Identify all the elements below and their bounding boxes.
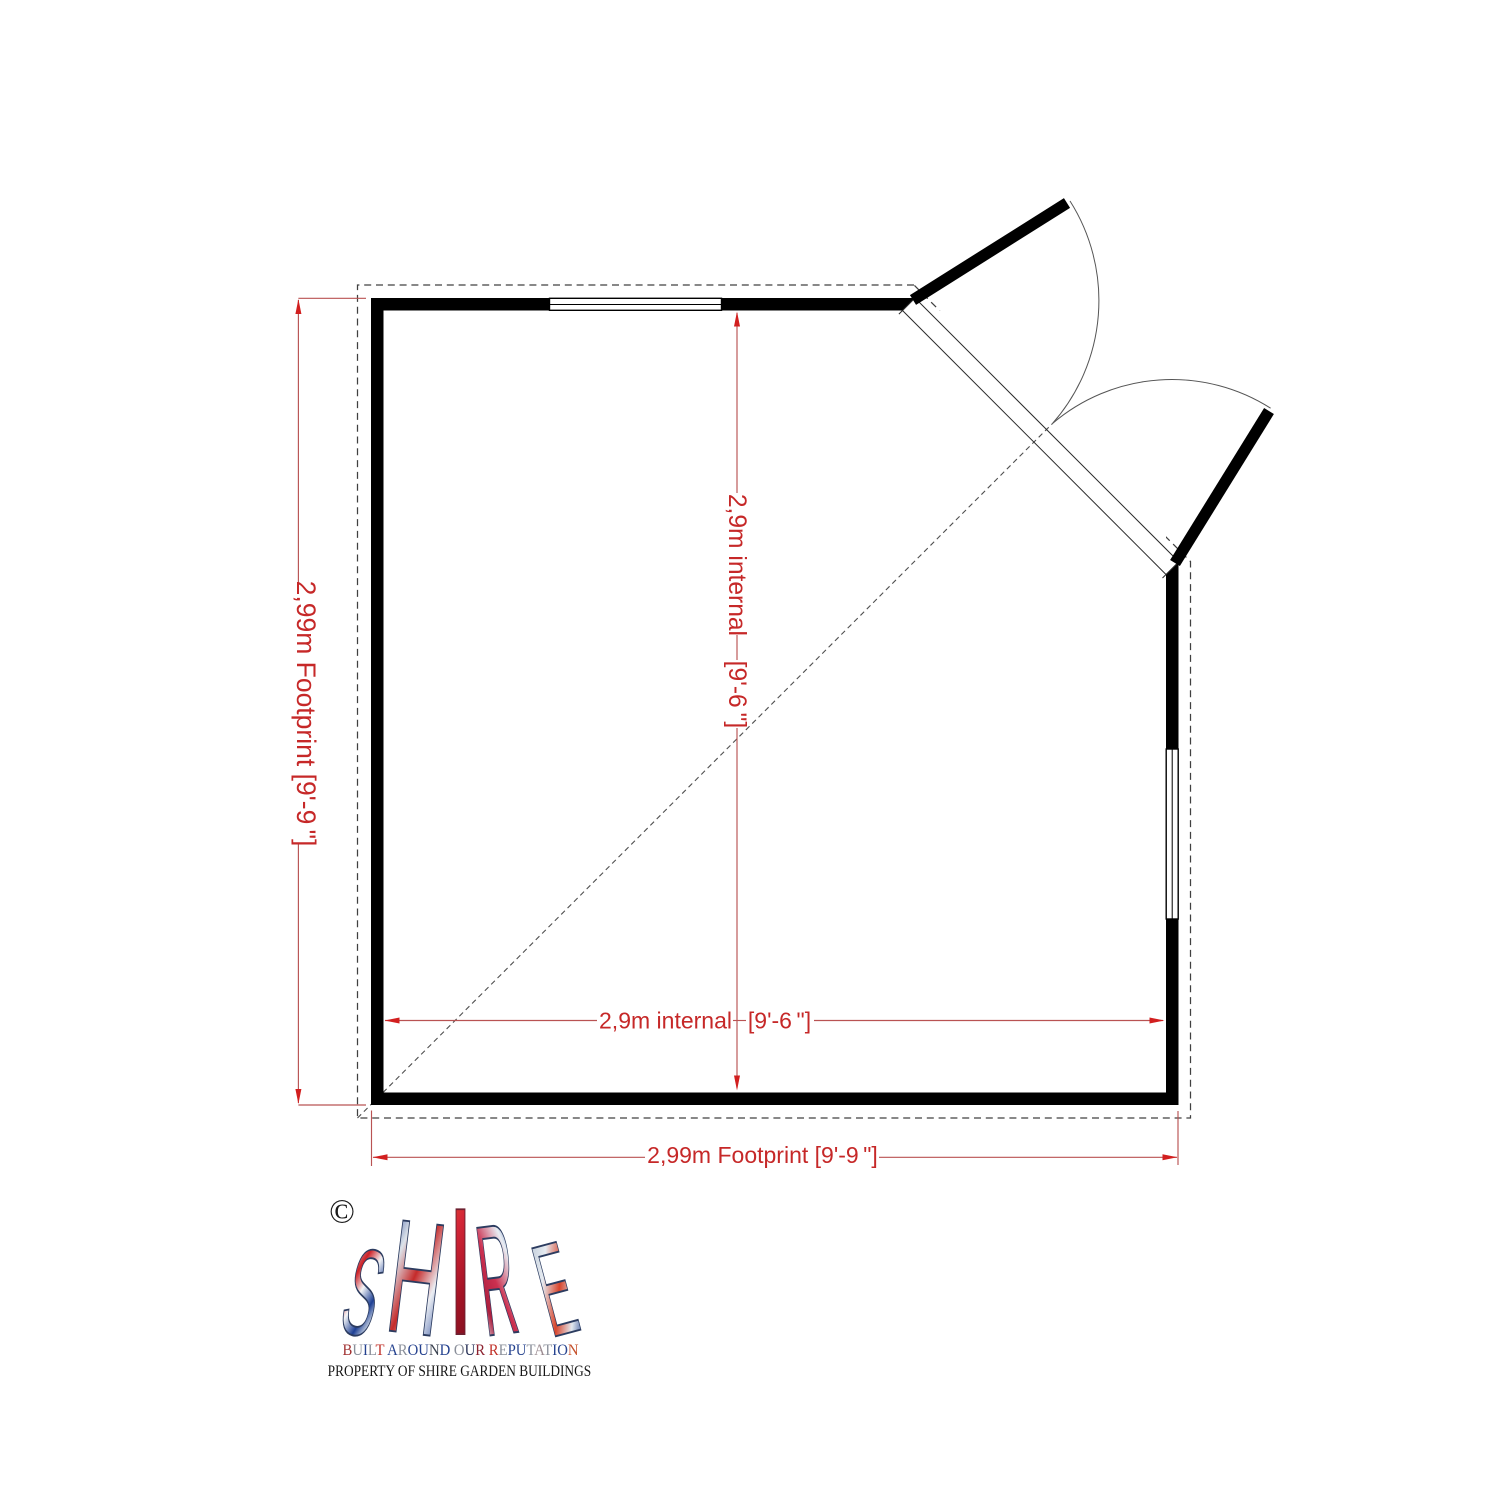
svg-text:2,99m Footprint [9'-9 "]: 2,99m Footprint [9'-9 "] bbox=[647, 1142, 878, 1168]
svg-text:[9'-6 "]: [9'-6 "] bbox=[748, 1008, 811, 1034]
svg-text:©: © bbox=[329, 1194, 355, 1231]
svg-text:2,99m Footprint [9'-9 "]: 2,99m Footprint [9'-9 "] bbox=[291, 581, 321, 847]
svg-text:PROPERTY OF SHIRE GARDEN BUILD: PROPERTY OF SHIRE GARDEN BUILDINGS bbox=[328, 1363, 592, 1380]
svg-text:2,9m internal [9'-6 "]: 2,9m internal [9'-6 "] bbox=[723, 494, 750, 728]
svg-text:2,9m internal: 2,9m internal bbox=[599, 1008, 732, 1034]
svg-text:BUILT AROUND OUR REPUTATION: BUILT AROUND OUR REPUTATION bbox=[343, 1342, 579, 1359]
